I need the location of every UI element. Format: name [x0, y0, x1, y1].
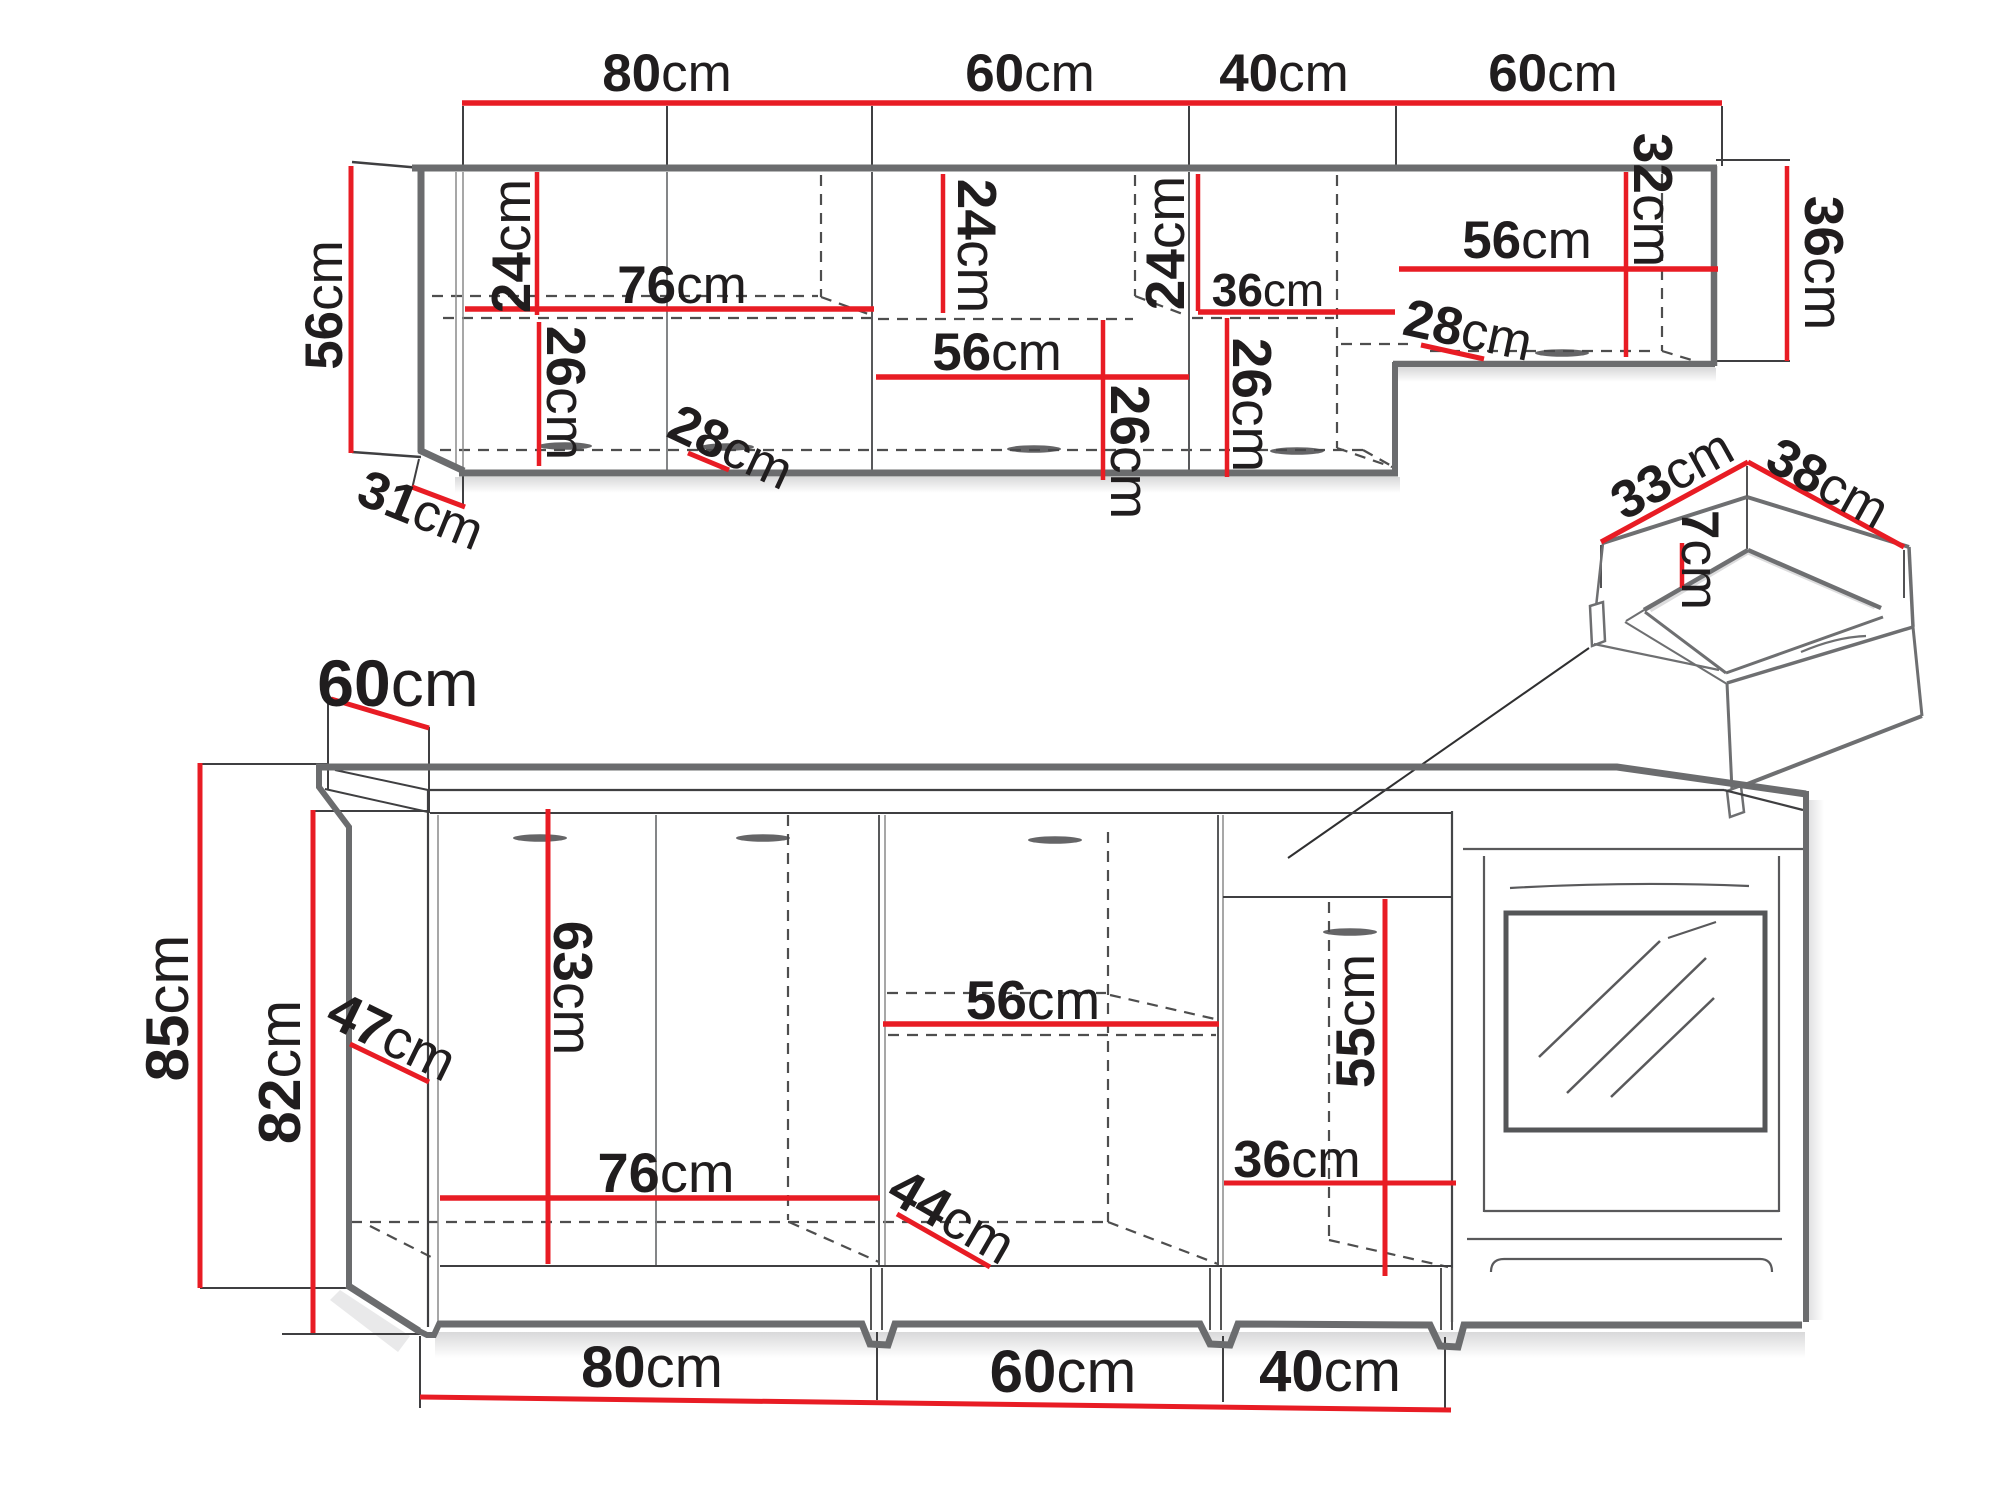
- svg-text:26cm: 26cm: [535, 326, 597, 461]
- svg-text:40cm: 40cm: [1259, 1339, 1401, 1404]
- svg-text:80cm: 80cm: [581, 1335, 723, 1400]
- svg-text:76cm: 76cm: [598, 1141, 735, 1204]
- svg-text:56cm: 56cm: [1462, 211, 1592, 270]
- svg-text:56cm: 56cm: [295, 240, 354, 370]
- svg-text:36cm: 36cm: [1233, 1131, 1360, 1189]
- svg-text:36cm: 36cm: [1793, 196, 1855, 331]
- svg-text:80cm: 80cm: [602, 44, 732, 103]
- svg-text:36cm: 36cm: [1212, 264, 1325, 316]
- svg-text:60cm: 60cm: [1488, 44, 1618, 103]
- svg-text:56cm: 56cm: [966, 969, 1101, 1031]
- svg-text:56cm: 56cm: [932, 323, 1062, 382]
- svg-text:24cm: 24cm: [946, 179, 1008, 314]
- svg-text:60cm: 60cm: [965, 44, 1095, 103]
- svg-text:60cm: 60cm: [317, 646, 478, 720]
- svg-text:40cm: 40cm: [1219, 44, 1349, 103]
- svg-text:26cm: 26cm: [1221, 338, 1283, 473]
- svg-text:7cm: 7cm: [1671, 510, 1730, 610]
- svg-text:26cm: 26cm: [1099, 385, 1161, 520]
- svg-text:32cm: 32cm: [1622, 133, 1684, 268]
- svg-text:85cm: 85cm: [134, 935, 201, 1082]
- svg-text:63cm: 63cm: [542, 921, 604, 1056]
- svg-text:76cm: 76cm: [617, 256, 747, 315]
- svg-text:55cm: 55cm: [1324, 954, 1386, 1089]
- svg-text:82cm: 82cm: [247, 1000, 313, 1144]
- svg-text:60cm: 60cm: [990, 1338, 1137, 1405]
- svg-text:24cm: 24cm: [480, 179, 542, 314]
- svg-text:24cm: 24cm: [1134, 176, 1196, 311]
